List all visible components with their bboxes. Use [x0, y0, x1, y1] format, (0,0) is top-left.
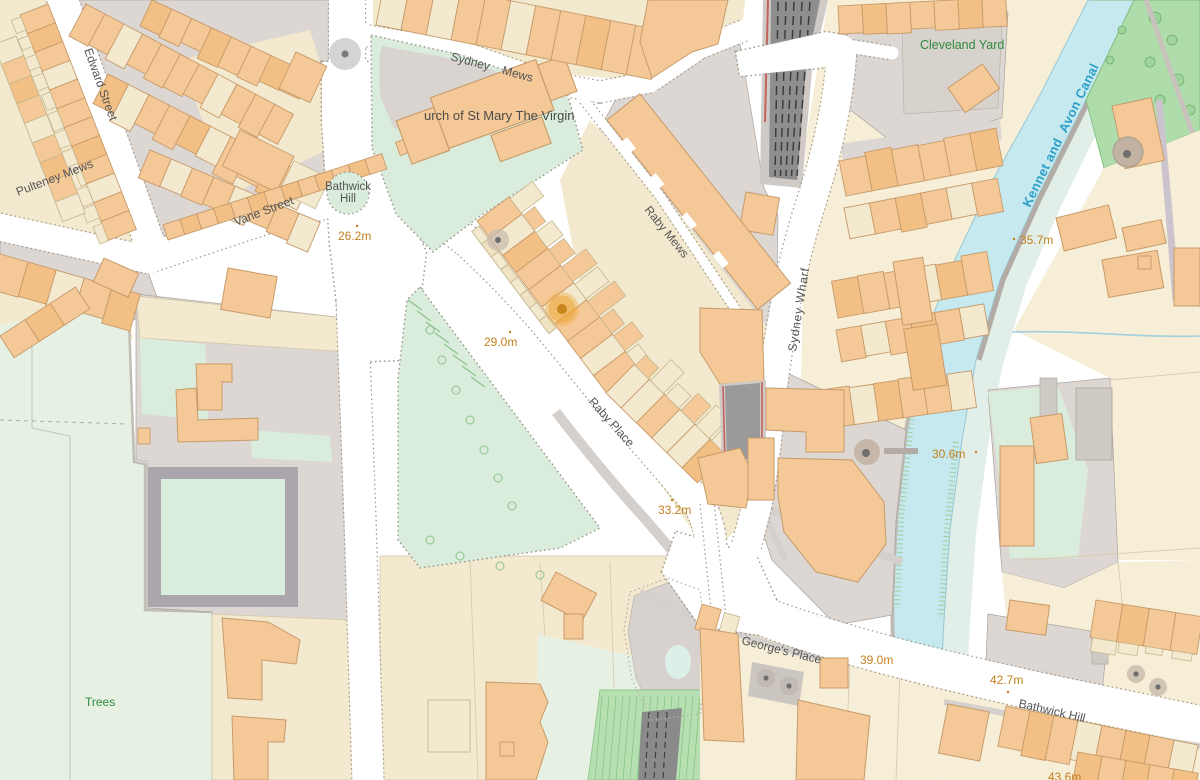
- svg-text:33.2m: 33.2m: [658, 503, 691, 517]
- svg-text:Cleveland Yard: Cleveland Yard: [920, 38, 1004, 52]
- svg-text:43.6m: 43.6m: [1048, 770, 1081, 780]
- svg-text:29.0m: 29.0m: [484, 335, 517, 349]
- svg-text:30.6m: 30.6m: [932, 447, 965, 461]
- svg-text:26.2m: 26.2m: [338, 229, 371, 243]
- svg-text:Hill: Hill: [340, 193, 356, 205]
- svg-text:Trees: Trees: [85, 695, 115, 709]
- svg-text:39.0m: 39.0m: [860, 653, 893, 667]
- svg-text:35.7m: 35.7m: [1020, 233, 1053, 247]
- svg-text:42.7m: 42.7m: [990, 673, 1023, 687]
- svg-text:urch of St Mary The Virgin: urch of St Mary The Virgin: [424, 108, 575, 123]
- svg-text:Bathwick: Bathwick: [325, 181, 371, 193]
